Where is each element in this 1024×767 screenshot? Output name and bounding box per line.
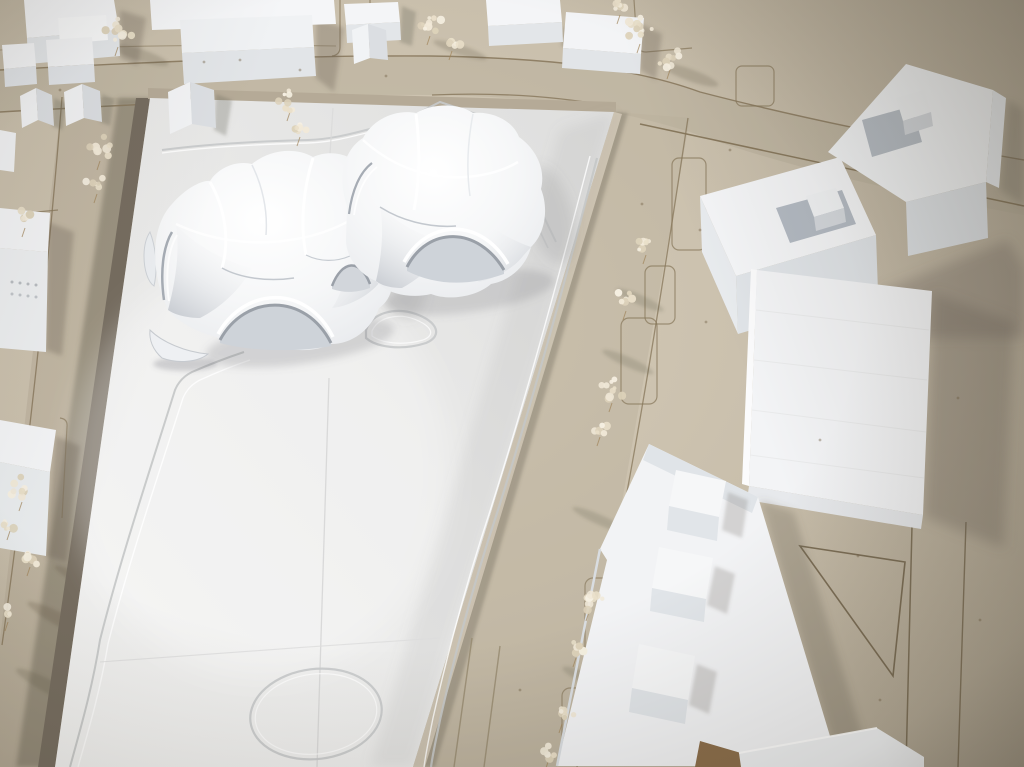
tree-blossom — [658, 61, 662, 65]
tree-blossom — [571, 712, 576, 717]
dust-speck — [819, 439, 822, 442]
tree-blossom — [113, 38, 117, 42]
tree-blossom — [423, 27, 427, 31]
tree-blossom — [102, 26, 110, 34]
tree-blossom — [128, 32, 135, 39]
tree-blossom — [576, 642, 583, 649]
slab-building-top — [749, 270, 932, 515]
dust-speck — [239, 59, 242, 62]
tree-blossom — [89, 179, 96, 186]
building-block-top — [0, 130, 16, 172]
tree-blossom — [610, 388, 616, 394]
tree-blossom — [583, 606, 591, 614]
tree-blossom — [23, 553, 31, 561]
tree-blossom — [600, 597, 604, 601]
render-root — [0, 0, 1024, 767]
tree-blossom — [618, 392, 626, 400]
tree-blossom — [1, 522, 8, 529]
tree-blossom — [627, 291, 632, 296]
tree-blossom — [86, 143, 93, 150]
tree-blossom — [432, 28, 439, 35]
tree-blossom — [101, 134, 107, 140]
tree-blossom — [26, 210, 35, 219]
tree-blossom — [11, 488, 17, 494]
dust-speck — [957, 397, 960, 400]
dust-speck — [641, 203, 644, 206]
building-block-face — [48, 64, 95, 85]
tree-blossom — [99, 175, 106, 182]
dust-speck — [705, 321, 708, 324]
tree-blossom — [303, 126, 310, 133]
building-window-dot — [27, 295, 30, 298]
tree-blossom — [284, 99, 291, 106]
building-window-dot — [35, 284, 38, 287]
tree-blossom — [9, 524, 18, 533]
tree-blossom — [601, 430, 607, 436]
dust-speck — [879, 699, 882, 702]
building-block-face — [0, 248, 48, 352]
dust-speck — [519, 689, 522, 692]
tree-blossom — [650, 27, 654, 31]
building-cube-top — [2, 43, 36, 69]
tree-blossom — [82, 178, 89, 185]
tree-blossom — [275, 97, 282, 104]
tree-blossom — [20, 216, 25, 221]
dust-speck — [729, 149, 732, 152]
tree-blossom — [10, 480, 18, 488]
tree-blossom — [96, 182, 100, 186]
tree-blossom — [592, 591, 601, 600]
tree-blossom — [595, 430, 599, 434]
tree-blossom — [93, 147, 102, 156]
building-block-face — [488, 22, 563, 46]
building-window-dot — [11, 281, 14, 284]
dust-speck — [699, 229, 702, 232]
tree-blossom — [456, 40, 465, 49]
tree-blossom — [644, 240, 649, 245]
tree-blossom — [628, 295, 636, 303]
building-cube-face — [4, 66, 37, 87]
tree-blossom — [612, 377, 618, 383]
dust-speck — [979, 619, 982, 622]
tree-blossom — [637, 248, 641, 252]
building-block-top — [563, 12, 644, 54]
tree-blossom — [599, 423, 605, 429]
tree-blossom — [118, 31, 127, 40]
dust-speck — [857, 555, 860, 558]
tree-blossom — [427, 16, 431, 20]
building-window-dot — [19, 282, 22, 285]
tree-blossom — [638, 31, 644, 37]
tree-blossom — [107, 142, 113, 148]
dust-speck — [59, 89, 62, 92]
tree-blossom — [426, 20, 432, 26]
dust-speck — [203, 61, 206, 64]
tree-blossom — [613, 0, 620, 7]
tree-blossom — [33, 561, 40, 568]
building-block-top — [486, 0, 562, 26]
tree-blossom — [283, 93, 287, 97]
tree-blossom — [294, 126, 299, 131]
tree-blossom — [559, 709, 564, 714]
tree-blossom — [551, 752, 557, 758]
tree-blossom — [603, 382, 609, 388]
tree-blossom — [105, 152, 112, 159]
tree-blossom — [18, 207, 26, 215]
tree-blossom — [540, 747, 548, 755]
tree-blossom — [625, 18, 634, 27]
tree-blossom — [636, 238, 643, 245]
building-block-face — [0, 462, 50, 556]
tree-blossom — [437, 16, 445, 24]
building-block-top — [46, 37, 94, 67]
tree-blossom — [571, 640, 576, 645]
building-window-dot — [11, 293, 14, 296]
tree-blossom — [18, 474, 25, 481]
dust-speck — [385, 75, 388, 78]
tree-blossom — [625, 32, 633, 40]
dust-speck — [299, 69, 302, 72]
tree-blossom — [115, 17, 120, 22]
model-photo-svg — [0, 0, 1024, 767]
tree-blossom — [562, 715, 567, 720]
building-window-dot — [35, 296, 38, 299]
tree-blossom — [619, 299, 625, 305]
tree-blossom — [637, 15, 643, 21]
tree-blossom — [615, 289, 623, 297]
tree-blossom — [7, 612, 12, 617]
building-window-dot — [27, 283, 30, 286]
tree-blossom — [3, 603, 11, 611]
tree-blossom — [675, 53, 682, 60]
building-window-dot — [19, 294, 22, 297]
tree-blossom — [19, 488, 26, 495]
architectural-model-photo — [0, 0, 1024, 767]
tree-blossom — [431, 15, 437, 21]
building-gable-roof — [352, 24, 370, 64]
tree-blossom — [286, 91, 292, 97]
tree-blossom — [6, 527, 10, 531]
tree-blossom — [633, 25, 640, 32]
building-block-tier — [180, 15, 314, 53]
building-shadow — [924, 293, 1014, 548]
building-block-top — [344, 2, 400, 25]
tree-blossom — [663, 63, 671, 71]
